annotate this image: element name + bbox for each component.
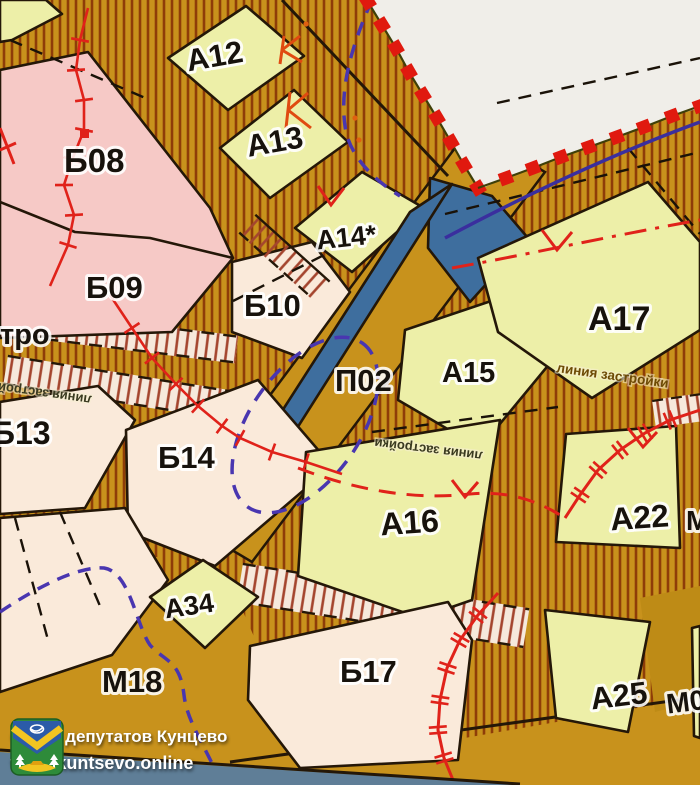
zone-label-m-edge: М bbox=[686, 505, 700, 536]
zone-label-b13: Б13 bbox=[0, 415, 51, 451]
zone-label-m0: М0 bbox=[665, 684, 700, 720]
zone-label-a16: А16 bbox=[379, 502, 440, 542]
zone-label-m18: М18 bbox=[102, 664, 162, 699]
zone-label-b14: Б14 bbox=[158, 440, 216, 475]
zone-label-a14: А14* bbox=[315, 219, 378, 255]
zone-label-b17: Б17 bbox=[340, 654, 397, 689]
zone-label-b08: Б08 bbox=[64, 142, 124, 179]
kuntsevo-coat-of-arms bbox=[10, 718, 64, 776]
zoning-map[interactable]: А12 А13 Б08 Б09 А14* Б10 П02 А15 А17 Б13… bbox=[0, 0, 700, 785]
zone-label-a17: А17 bbox=[588, 300, 650, 338]
zone-edge-e bbox=[692, 626, 700, 738]
zone-label-b09: Б09 bbox=[86, 270, 143, 305]
zone-label-a25: А25 bbox=[589, 675, 650, 717]
metro-label-fragment: тро bbox=[0, 319, 50, 351]
zone-label-p02: П02 bbox=[335, 363, 392, 398]
map-canvas: А12 А13 Б08 Б09 А14* Б10 П02 А15 А17 Б13… bbox=[0, 0, 700, 785]
zone-label-a22: А22 bbox=[609, 497, 670, 537]
zone-label-b10: Б10 bbox=[244, 288, 301, 323]
zone-label-a15: А15 bbox=[442, 357, 495, 389]
footer-watermark: Совет депутатов Кунцево www.kuntsevo.onl… bbox=[10, 718, 430, 782]
